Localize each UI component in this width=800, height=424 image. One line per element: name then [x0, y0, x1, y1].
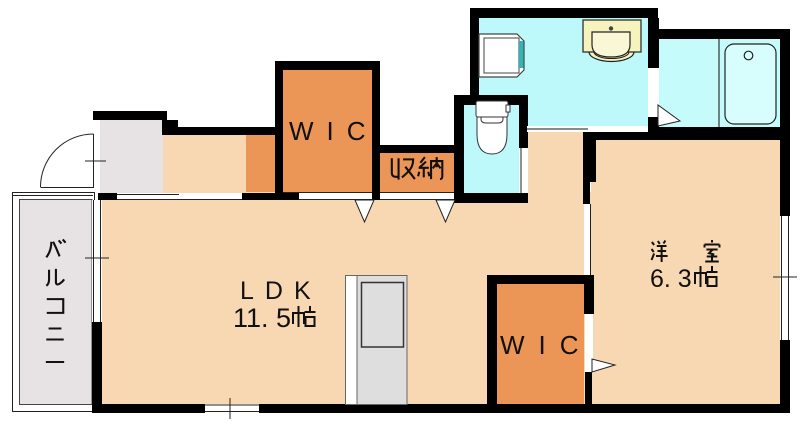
- svg-text:WIC: WIC: [289, 116, 379, 146]
- svg-text:11. 5: 11. 5: [233, 303, 291, 333]
- svg-text:LDK: LDK: [240, 277, 322, 305]
- svg-text:WIC: WIC: [500, 330, 593, 360]
- svg-text:6. 3: 6. 3: [650, 265, 692, 293]
